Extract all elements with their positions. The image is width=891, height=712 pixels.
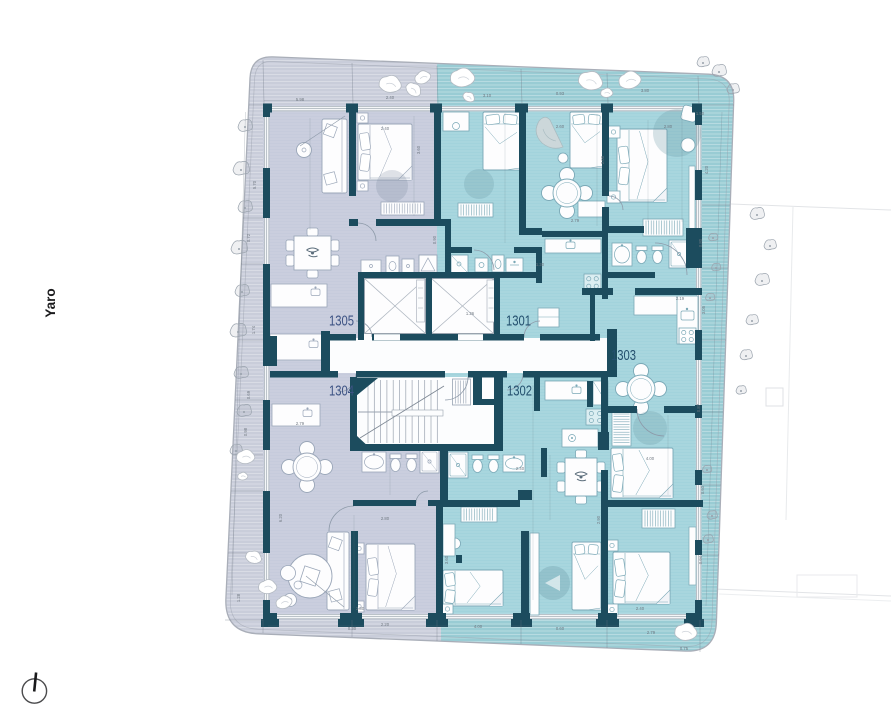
svg-text:4.00: 4.00 (646, 456, 655, 461)
svg-text:2.80: 2.80 (356, 606, 365, 611)
svg-text:3.10: 3.10 (483, 93, 492, 98)
svg-text:0.94: 0.94 (698, 555, 703, 564)
svg-text:0.60: 0.60 (700, 485, 705, 494)
svg-text:0.69: 0.69 (246, 390, 251, 399)
svg-text:2.79: 2.79 (296, 421, 305, 426)
svg-text:0.80: 0.80 (698, 238, 703, 247)
svg-text:5.98: 5.98 (296, 97, 305, 102)
svg-text:3.80: 3.80 (641, 88, 650, 93)
svg-text:6.20: 6.20 (278, 513, 283, 522)
svg-text:2.79: 2.79 (647, 630, 656, 635)
svg-text:2.80: 2.80 (664, 124, 673, 129)
svg-text:2.79: 2.79 (571, 218, 580, 223)
svg-text:2.40: 2.40 (386, 95, 395, 100)
svg-text:2.90: 2.90 (596, 515, 601, 524)
svg-text:1304: 1304 (329, 384, 354, 400)
svg-text:0.87: 0.87 (696, 403, 701, 412)
svg-text:2.40: 2.40 (636, 606, 645, 611)
svg-text:4.00: 4.00 (474, 624, 483, 629)
svg-text:0.98: 0.98 (243, 427, 248, 436)
svg-text:3.60: 3.60 (444, 555, 449, 564)
svg-text:0.72: 0.72 (246, 233, 251, 242)
svg-text:1301: 1301 (506, 314, 531, 330)
svg-text:5.70: 5.70 (252, 180, 257, 189)
svg-text:2.00: 2.00 (600, 155, 605, 164)
svg-text:0.30: 0.30 (348, 626, 357, 631)
svg-text:1.28: 1.28 (236, 593, 241, 602)
svg-text:1305: 1305 (329, 314, 354, 330)
svg-text:0.60: 0.60 (556, 626, 565, 631)
svg-text:1302: 1302 (507, 384, 532, 400)
svg-text:2.40: 2.40 (381, 126, 390, 131)
svg-text:1303: 1303 (611, 348, 636, 364)
svg-text:0.93: 0.93 (556, 91, 565, 96)
svg-text:2.80: 2.80 (381, 516, 390, 521)
svg-text:2.60: 2.60 (556, 124, 565, 129)
svg-text:3.05: 3.05 (701, 305, 706, 314)
svg-text:2.19: 2.19 (676, 296, 685, 301)
svg-text:3.60: 3.60 (416, 145, 421, 154)
svg-text:1.74: 1.74 (251, 325, 256, 334)
svg-text:1.30: 1.30 (536, 262, 545, 267)
svg-text:4.20: 4.20 (704, 165, 709, 174)
svg-text:1.50: 1.50 (696, 111, 705, 116)
svg-text:Yaro: Yaro (43, 288, 58, 317)
svg-text:0.90: 0.90 (432, 235, 437, 244)
svg-text:0.75: 0.75 (680, 646, 689, 651)
svg-text:1.26: 1.26 (466, 311, 475, 316)
svg-text:2.40: 2.40 (516, 466, 525, 471)
